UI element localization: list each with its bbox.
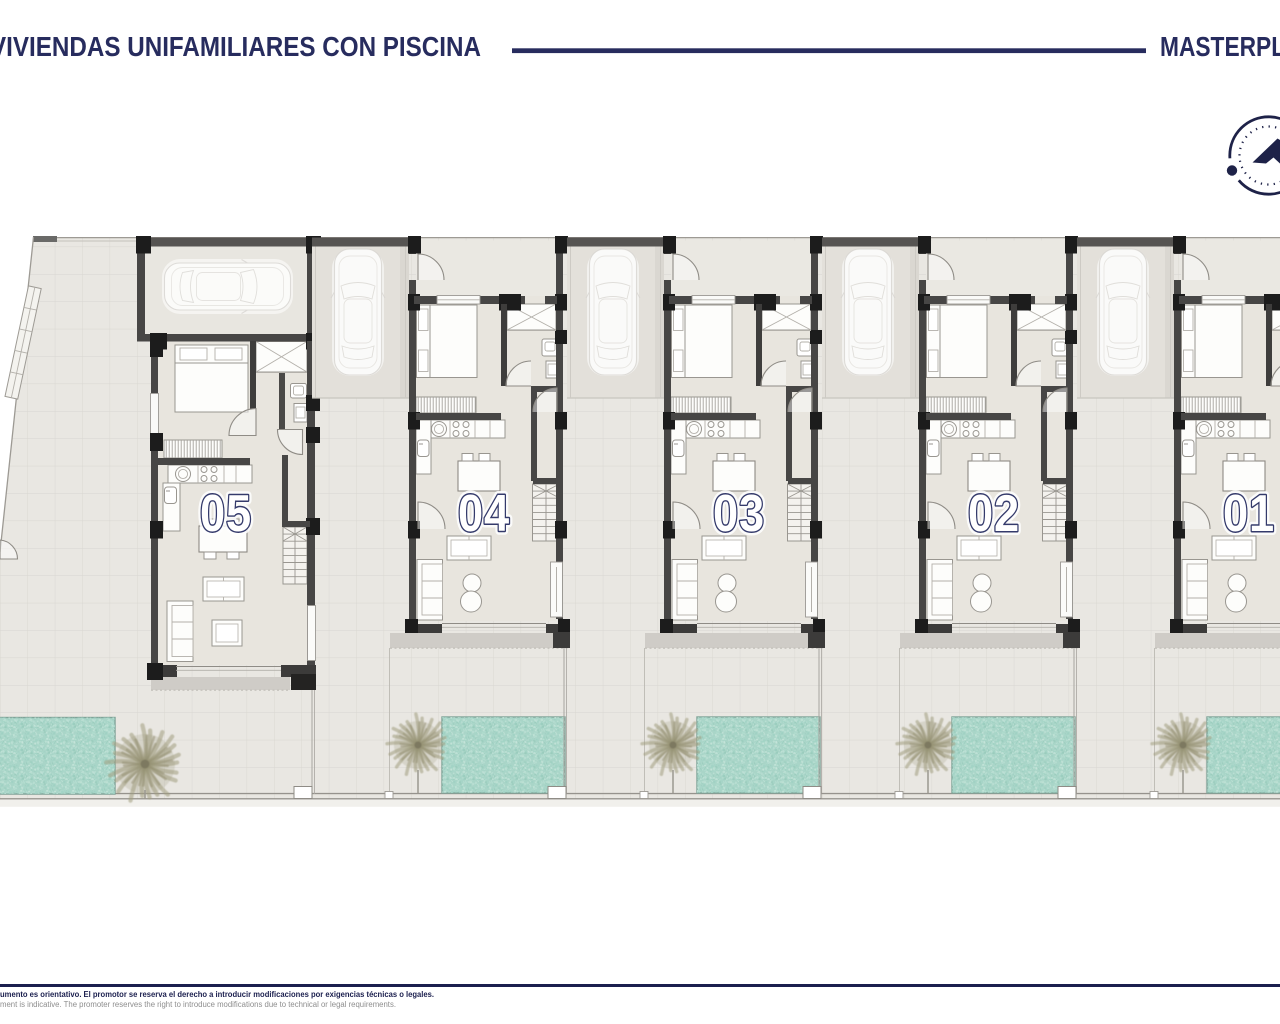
svg-text:umento es orientativo. El prom: umento es orientativo. El promotor se re… [0, 990, 434, 999]
svg-text:ment is indicative. The promot: ment is indicative. The promoter reserve… [0, 1000, 396, 1009]
svg-text:03: 03 [713, 485, 765, 543]
svg-text:MASTERPLAN: MASTERPLAN [1160, 31, 1280, 62]
svg-text:04: 04 [458, 485, 510, 543]
svg-text:05: 05 [200, 485, 252, 543]
svg-text:02: 02 [968, 485, 1020, 543]
svg-text:VIVIENDAS UNIFAMILIARES CON PI: VIVIENDAS UNIFAMILIARES CON PISCINA [0, 31, 481, 62]
svg-text:01: 01 [1223, 485, 1275, 543]
